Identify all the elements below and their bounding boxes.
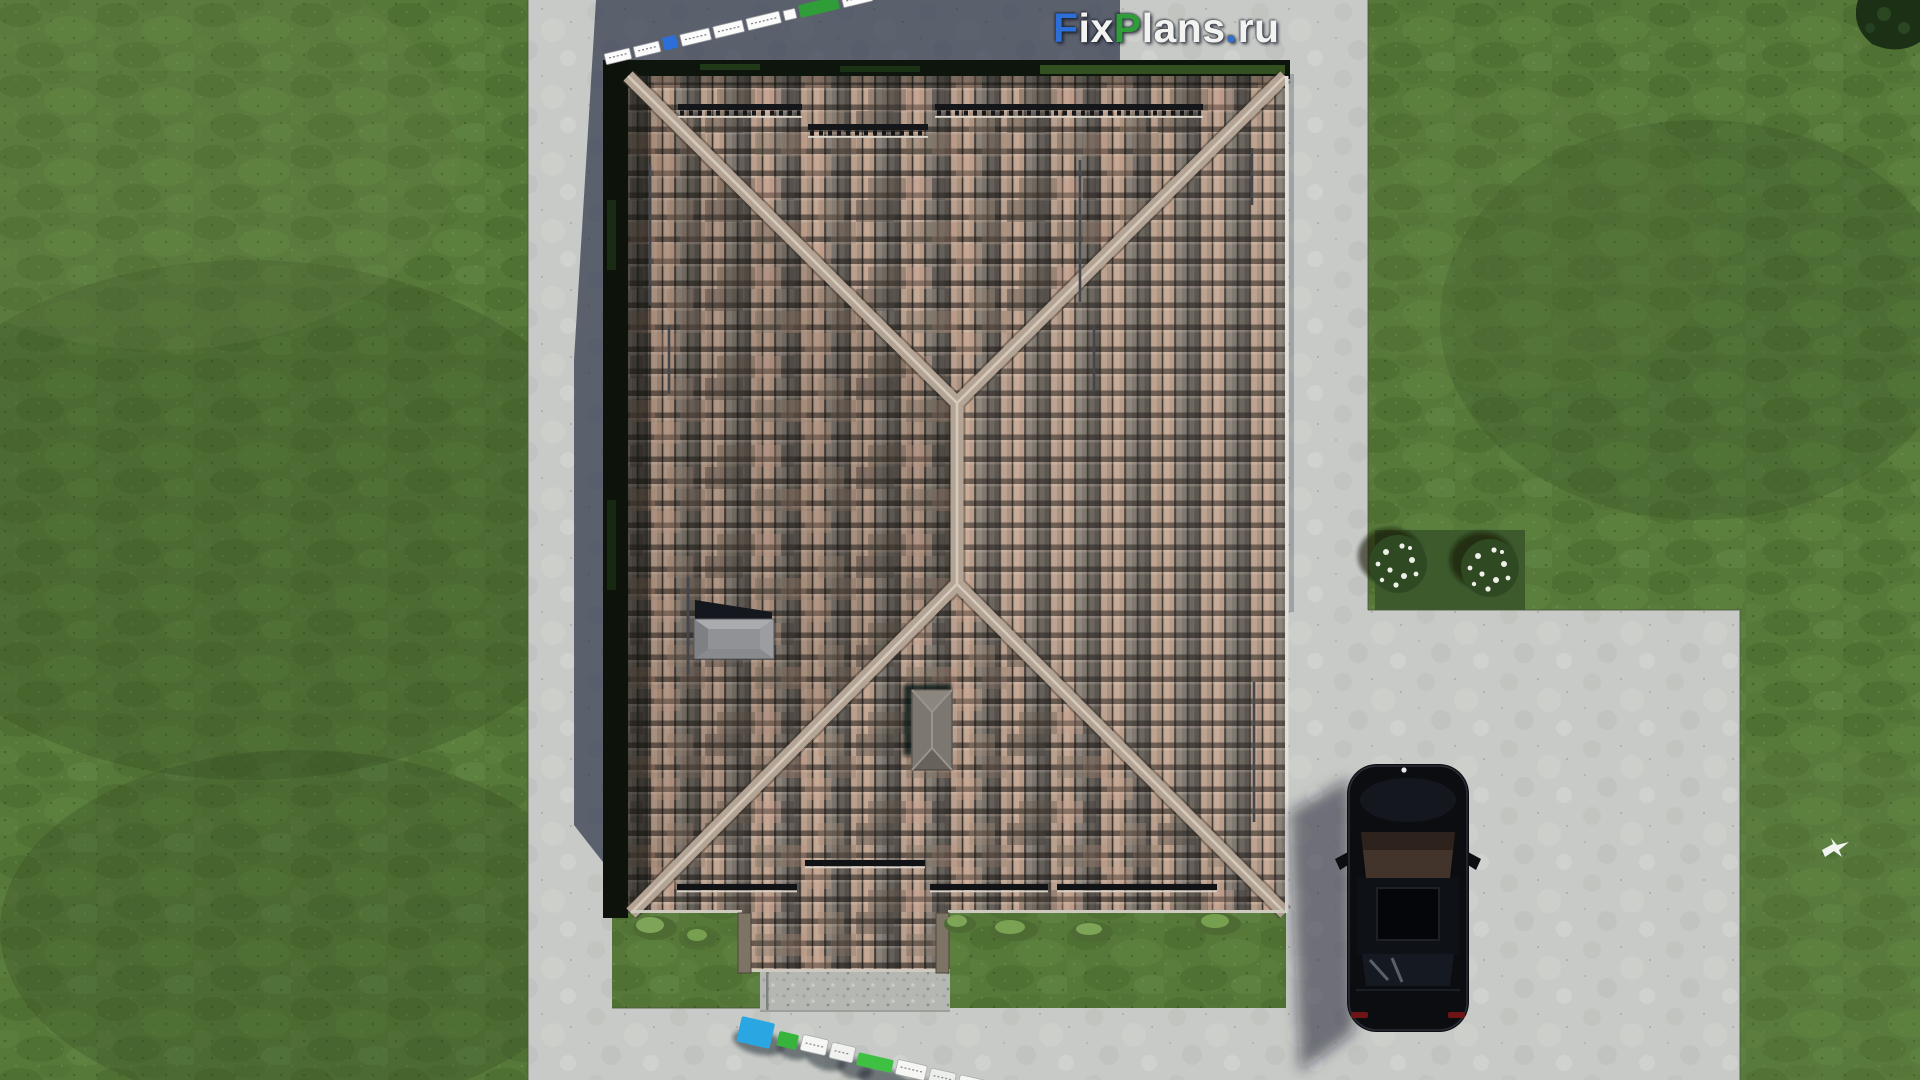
rear-window [1362,954,1454,986]
aerial-render-canvas [0,0,1920,1080]
logo-seg-lans: lans [1142,8,1226,49]
left-eave-shade [628,76,648,913]
logo-seg-ru: ru [1238,8,1280,49]
site-plan-render: FixPlans.ru [0,0,1920,1080]
eave-gutter-shadow [1289,74,1294,612]
hip-roof [628,76,1289,973]
logo-seg-f: F [1053,8,1079,49]
black-car [1290,764,1481,1072]
top-eave-shade [628,76,1285,85]
logo-seg-dot: . [1226,8,1238,49]
logo-seg-ix: ix [1079,8,1114,49]
fixplans-logo: FixPlans.ru [1053,8,1280,49]
path-right-strip [1286,0,1368,612]
hood-sheen [1360,778,1456,822]
entry-steps [760,969,950,1012]
car-shadow [1290,778,1354,1072]
right-taillight [1448,1012,1465,1018]
left-taillight [1351,1012,1368,1018]
antenna-dot [1401,767,1406,772]
sunroof [1377,888,1439,940]
path-bottom-band [612,1008,1288,1080]
logo-seg-p: P [1114,8,1142,49]
